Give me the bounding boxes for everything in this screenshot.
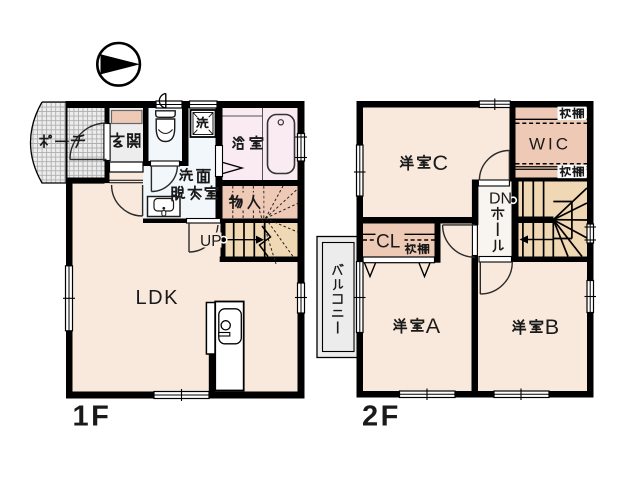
svg-text:DN: DN: [489, 191, 512, 208]
svg-text:CL: CL: [376, 232, 400, 253]
svg-text:B: B: [545, 315, 559, 339]
svg-text:C: C: [433, 151, 449, 175]
svg-text:1F: 1F: [73, 401, 112, 433]
svg-text:2F: 2F: [362, 401, 401, 433]
svg-text:WIC: WIC: [529, 135, 571, 154]
svg-text:A: A: [426, 314, 441, 338]
svg-text:LDK: LDK: [136, 287, 179, 309]
svg-text:UP: UP: [200, 233, 222, 250]
